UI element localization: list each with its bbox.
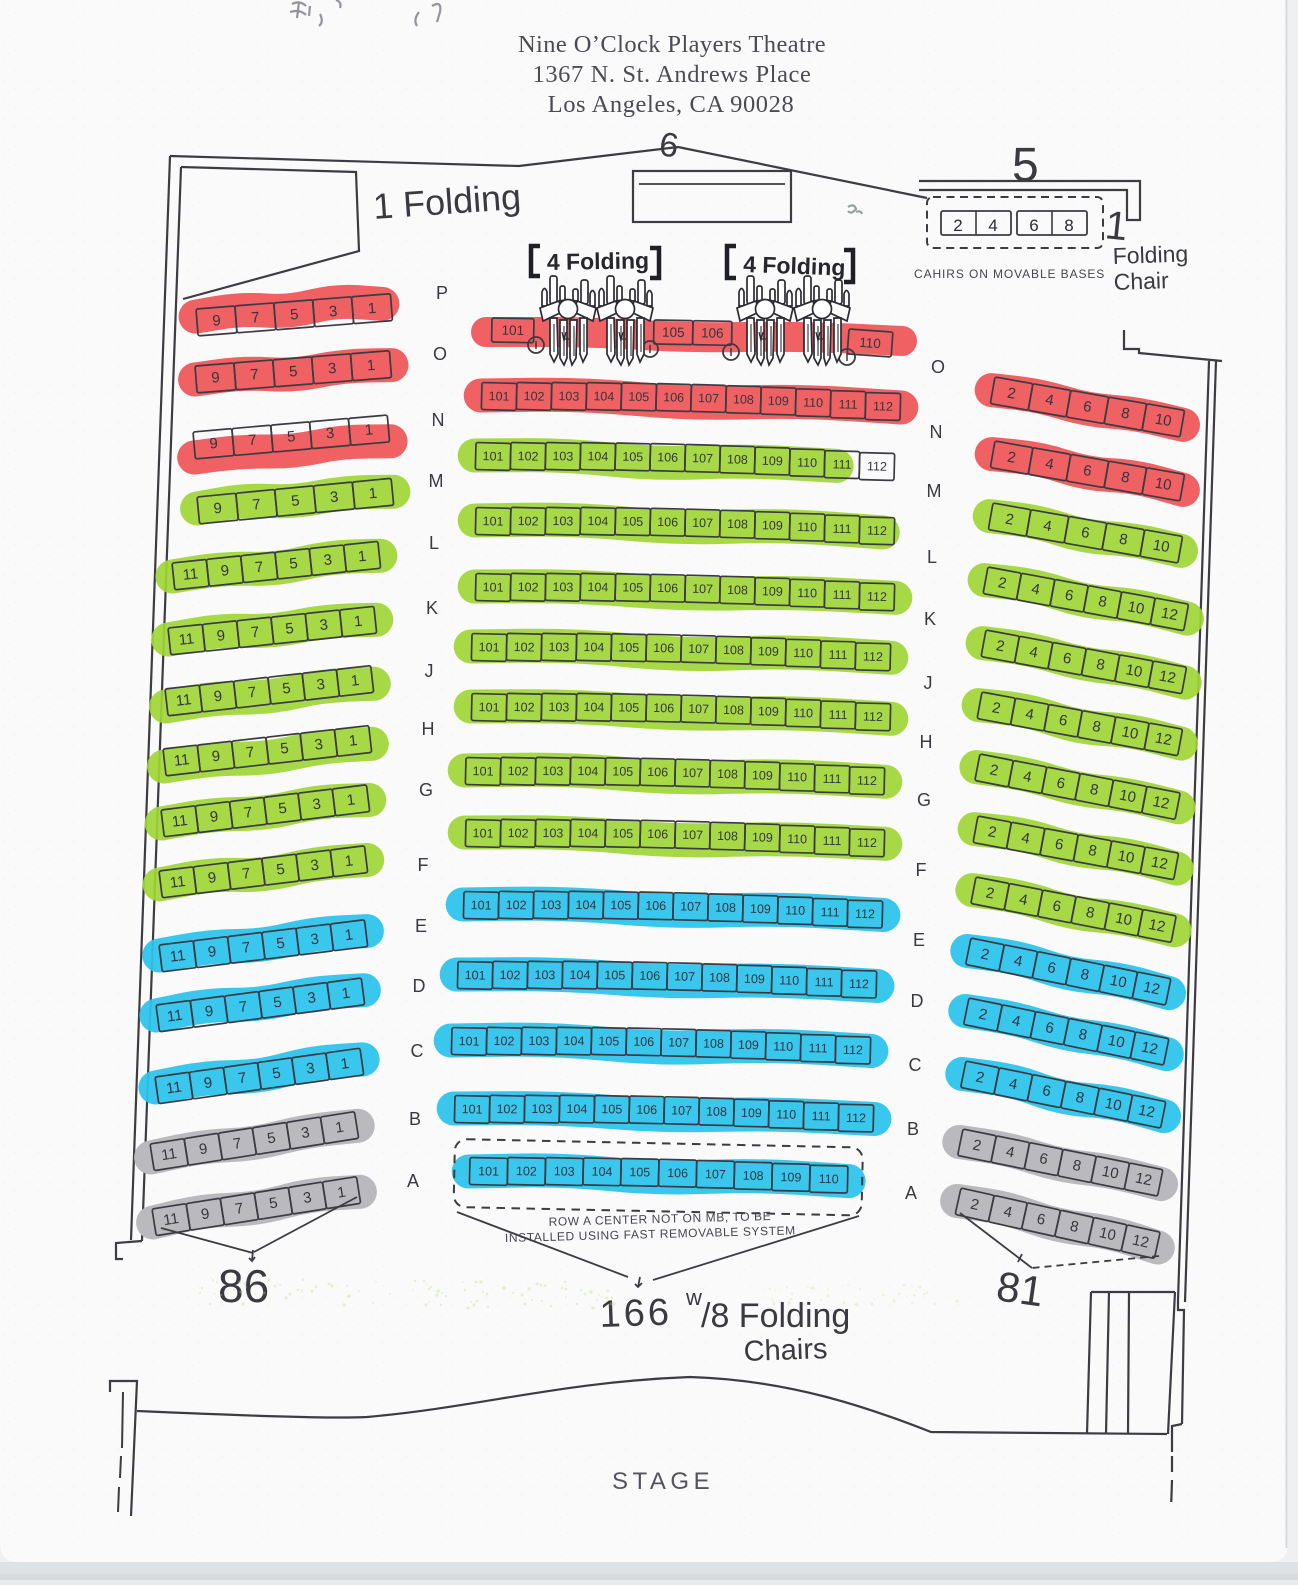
svg-text:12: 12	[1140, 1039, 1160, 1059]
svg-text:104: 104	[587, 514, 608, 529]
svg-text:8: 8	[1064, 216, 1073, 235]
svg-text:104: 104	[563, 1034, 584, 1048]
svg-text:103: 103	[542, 826, 563, 841]
svg-text:J: J	[924, 673, 933, 693]
svg-text:Nine O’Clock Players Theatre: Nine O’Clock Players Theatre	[518, 31, 826, 58]
svg-text:J: J	[425, 661, 434, 681]
svg-text:110: 110	[797, 520, 817, 534]
svg-text:107: 107	[671, 1103, 692, 1117]
svg-text:A: A	[905, 1183, 917, 1203]
svg-text:112: 112	[863, 650, 883, 664]
svg-text:103: 103	[552, 514, 573, 529]
svg-text:3: 3	[319, 616, 329, 634]
svg-text:9: 9	[220, 562, 230, 580]
svg-text:B: B	[409, 1109, 421, 1129]
svg-text:101: 101	[488, 389, 509, 404]
svg-text:11: 11	[182, 565, 199, 584]
svg-text:103: 103	[540, 898, 561, 912]
svg-text:C: C	[411, 1041, 424, 1061]
svg-text:1: 1	[357, 548, 367, 566]
svg-text:105: 105	[622, 580, 643, 595]
svg-text:111: 111	[811, 1109, 830, 1123]
svg-text:106: 106	[653, 641, 674, 656]
svg-text:P: P	[436, 283, 448, 303]
svg-text:109: 109	[750, 902, 771, 916]
svg-text:110: 110	[787, 770, 807, 784]
svg-text:12: 12	[1151, 793, 1171, 813]
svg-text:H: H	[422, 719, 435, 739]
svg-text:3: 3	[329, 488, 339, 506]
svg-text:N: N	[930, 422, 943, 442]
svg-text:10: 10	[1108, 972, 1128, 992]
svg-text:10: 10	[1126, 598, 1146, 618]
svg-text:105: 105	[598, 1034, 619, 1048]
svg-text:5: 5	[289, 555, 299, 573]
svg-text:11: 11	[166, 1007, 184, 1026]
svg-text:H: H	[920, 732, 933, 752]
svg-text:108: 108	[733, 392, 754, 407]
svg-text:E: E	[913, 930, 925, 950]
svg-text:108: 108	[717, 767, 738, 782]
svg-text:D: D	[413, 976, 426, 996]
svg-text:106: 106	[657, 515, 678, 530]
svg-text:106: 106	[647, 765, 668, 780]
svg-text:107: 107	[698, 391, 719, 406]
svg-text:9: 9	[209, 435, 219, 453]
svg-text:O: O	[931, 357, 945, 377]
svg-text:F: F	[418, 855, 429, 875]
svg-text:104: 104	[577, 764, 598, 779]
svg-text:4: 4	[988, 216, 997, 235]
svg-text:109: 109	[741, 1106, 762, 1120]
svg-text:G: G	[917, 790, 931, 810]
svg-text:101: 101	[462, 1102, 483, 1116]
svg-text:7: 7	[254, 559, 264, 577]
svg-text:101: 101	[478, 700, 499, 715]
svg-text:L: L	[927, 547, 937, 567]
svg-text:G: G	[419, 780, 433, 800]
svg-text:111: 111	[808, 1041, 827, 1055]
svg-text:11: 11	[171, 812, 189, 831]
svg-text:112: 112	[867, 524, 887, 538]
svg-text:102: 102	[506, 898, 527, 912]
svg-text:109: 109	[762, 518, 783, 533]
svg-text:104: 104	[587, 449, 608, 464]
svg-text:112: 112	[873, 399, 893, 414]
svg-text:10: 10	[1106, 1032, 1126, 1052]
svg-text:107: 107	[668, 1035, 689, 1049]
svg-text:104: 104	[591, 1165, 612, 1179]
svg-text:11: 11	[178, 630, 195, 649]
svg-text:108: 108	[727, 452, 748, 467]
svg-text:110: 110	[797, 456, 817, 471]
svg-text:104: 104	[569, 968, 590, 982]
svg-text:w: w	[685, 1285, 702, 1310]
svg-text:112: 112	[867, 590, 887, 604]
svg-text:Los Angeles, CA 90028: Los Angeles, CA 90028	[548, 91, 795, 118]
svg-text:109: 109	[780, 1170, 801, 1184]
svg-text:104: 104	[575, 898, 596, 912]
svg-text:12: 12	[1147, 916, 1167, 936]
svg-text:K: K	[924, 609, 936, 629]
svg-text:112: 112	[857, 836, 877, 850]
svg-text:111: 111	[832, 457, 851, 471]
svg-text:7: 7	[248, 432, 258, 450]
svg-text:108: 108	[715, 901, 736, 915]
svg-text:103: 103	[552, 580, 573, 595]
svg-text:11: 11	[169, 947, 187, 966]
svg-text:104: 104	[566, 1102, 587, 1116]
svg-text:111: 111	[832, 588, 851, 602]
svg-text:106: 106	[645, 899, 666, 913]
svg-text:10: 10	[1114, 910, 1134, 930]
svg-text:108: 108	[727, 583, 748, 598]
svg-text:112: 112	[843, 1043, 863, 1057]
svg-text:5: 5	[286, 428, 296, 446]
svg-text:11: 11	[165, 1078, 183, 1097]
svg-text:102: 102	[513, 640, 534, 655]
svg-text:108: 108	[717, 829, 738, 844]
svg-text:111: 111	[820, 905, 839, 919]
svg-text:166: 166	[599, 1291, 673, 1336]
svg-text:111: 111	[832, 522, 851, 536]
svg-text:D: D	[911, 991, 924, 1011]
svg-text:103: 103	[558, 389, 579, 404]
svg-text:112: 112	[846, 1111, 866, 1125]
svg-text:109: 109	[762, 584, 783, 599]
svg-text:12: 12	[1158, 667, 1178, 687]
svg-text:103: 103	[554, 1164, 575, 1178]
svg-text:1: 1	[367, 300, 377, 318]
svg-text:109: 109	[768, 394, 789, 409]
svg-text:111: 111	[814, 975, 833, 989]
svg-text:112: 112	[849, 977, 869, 991]
svg-text:103: 103	[548, 640, 569, 655]
svg-text:108: 108	[723, 643, 744, 658]
svg-text:101: 101	[501, 323, 524, 338]
svg-text:12: 12	[1150, 853, 1170, 873]
svg-text:112: 112	[855, 907, 875, 921]
svg-text:101: 101	[465, 968, 486, 982]
svg-text:108: 108	[723, 703, 744, 718]
svg-text:108: 108	[703, 1037, 724, 1051]
svg-text:102: 102	[513, 700, 534, 715]
svg-text:O: O	[433, 344, 447, 364]
svg-text:5: 5	[290, 492, 300, 510]
svg-text:103: 103	[534, 968, 555, 982]
svg-text:9: 9	[213, 500, 223, 518]
svg-text:110: 110	[859, 335, 882, 351]
svg-text:A: A	[407, 1171, 419, 1191]
svg-text:105: 105	[622, 514, 643, 529]
svg-text:10: 10	[1120, 723, 1140, 743]
svg-text:107: 107	[688, 642, 709, 657]
svg-text:106: 106	[647, 827, 668, 842]
svg-text:102: 102	[496, 1102, 517, 1116]
svg-text:L: L	[429, 533, 439, 553]
svg-text:105: 105	[622, 450, 643, 465]
svg-text:CAHIRS ON MOVABLE BASES: CAHIRS ON MOVABLE BASES	[914, 267, 1105, 281]
svg-text:9: 9	[216, 627, 226, 645]
svg-text:11: 11	[173, 751, 190, 770]
svg-text:12: 12	[1142, 979, 1162, 999]
svg-text:106: 106	[701, 325, 724, 340]
svg-text:3: 3	[327, 360, 337, 378]
svg-text:11: 11	[169, 873, 187, 892]
svg-text:105: 105	[604, 968, 625, 982]
svg-text:107: 107	[682, 766, 703, 781]
svg-text:11: 11	[160, 1145, 178, 1164]
svg-text:104: 104	[593, 389, 614, 404]
svg-text:103: 103	[542, 764, 563, 779]
svg-text:E: E	[415, 916, 427, 936]
svg-text:111: 111	[828, 648, 847, 662]
svg-text:F: F	[916, 860, 927, 880]
svg-text:5: 5	[285, 620, 295, 638]
svg-text:111: 111	[828, 708, 847, 722]
svg-text:108: 108	[706, 1105, 727, 1119]
svg-text:103: 103	[552, 449, 573, 464]
svg-text:107: 107	[682, 828, 703, 843]
svg-text:112: 112	[863, 710, 883, 724]
svg-text:N: N	[432, 410, 445, 430]
svg-text:1: 1	[353, 613, 363, 631]
svg-text:101: 101	[482, 449, 503, 464]
svg-text:6: 6	[1029, 216, 1038, 235]
svg-text:1: 1	[368, 485, 378, 503]
svg-text:101: 101	[478, 1164, 499, 1178]
svg-text:107: 107	[688, 702, 709, 717]
svg-text:104: 104	[577, 826, 598, 841]
svg-text:103: 103	[528, 1034, 549, 1048]
svg-text:81: 81	[994, 1262, 1047, 1315]
svg-text:102: 102	[493, 1034, 514, 1048]
svg-text:10: 10	[1154, 475, 1173, 495]
svg-text:101: 101	[472, 826, 493, 841]
svg-text:3: 3	[325, 425, 335, 443]
svg-text:107: 107	[692, 516, 713, 531]
svg-text:1367 N. St. Andrews Place: 1367 N. St. Andrews Place	[532, 61, 811, 88]
svg-text:11: 11	[162, 1210, 180, 1229]
svg-text:105: 105	[628, 390, 649, 405]
svg-text:7: 7	[250, 366, 260, 384]
svg-text:3: 3	[323, 551, 333, 569]
svg-text:M: M	[927, 481, 942, 501]
svg-text:C: C	[909, 1055, 922, 1075]
svg-text:10: 10	[1100, 1163, 1120, 1183]
svg-text:110: 110	[793, 646, 813, 660]
svg-text:4 Folding: 4 Folding	[547, 247, 650, 275]
svg-text:102: 102	[517, 449, 538, 464]
svg-text:10: 10	[1154, 411, 1173, 431]
svg-text:111: 111	[838, 397, 857, 411]
svg-text:101: 101	[459, 1034, 480, 1048]
svg-text:103: 103	[548, 700, 569, 715]
svg-text:109: 109	[758, 704, 779, 719]
svg-text:101: 101	[482, 580, 503, 595]
svg-text:106: 106	[633, 1035, 654, 1049]
svg-text:107: 107	[692, 451, 713, 466]
svg-text:101: 101	[471, 898, 492, 912]
svg-text:5: 5	[1012, 139, 1039, 192]
svg-text:12: 12	[1160, 604, 1180, 624]
svg-text:7: 7	[250, 624, 260, 642]
svg-text:108: 108	[727, 517, 748, 532]
svg-text:101: 101	[482, 514, 503, 529]
svg-text:K: K	[426, 598, 438, 618]
svg-text:9: 9	[211, 369, 221, 387]
svg-text:107: 107	[680, 899, 701, 913]
svg-text:102: 102	[517, 514, 538, 529]
svg-text:4 Folding: 4 Folding	[743, 251, 846, 281]
svg-text:7: 7	[251, 309, 261, 327]
svg-text:105: 105	[610, 898, 631, 912]
svg-text:11: 11	[175, 691, 192, 710]
svg-text:12: 12	[1137, 1102, 1157, 1122]
svg-text:107: 107	[692, 582, 713, 597]
svg-text:106: 106	[636, 1103, 657, 1117]
svg-text:104: 104	[583, 700, 604, 715]
svg-text:M: M	[429, 471, 444, 491]
svg-text:108: 108	[743, 1169, 764, 1183]
svg-text:110: 110	[793, 706, 813, 720]
svg-text:10: 10	[1124, 661, 1144, 681]
svg-text:106: 106	[657, 450, 678, 465]
svg-text:107: 107	[674, 969, 695, 983]
svg-text:110: 110	[819, 1172, 839, 1186]
svg-text:112: 112	[867, 459, 887, 474]
svg-text:106: 106	[639, 969, 660, 983]
svg-text:102: 102	[507, 826, 528, 841]
svg-text:106: 106	[657, 581, 678, 596]
svg-text:109: 109	[744, 972, 765, 986]
svg-text:102: 102	[507, 764, 528, 779]
svg-text:B: B	[907, 1119, 919, 1139]
svg-text:102: 102	[516, 1164, 537, 1178]
svg-text:109: 109	[738, 1038, 759, 1052]
svg-text:111: 111	[822, 834, 841, 848]
svg-text:105: 105	[662, 325, 685, 340]
svg-text:10: 10	[1116, 847, 1136, 867]
svg-text:10: 10	[1152, 537, 1171, 557]
svg-text:105: 105	[612, 764, 633, 779]
svg-text:9: 9	[212, 312, 222, 330]
svg-text:10: 10	[1118, 787, 1138, 807]
svg-text:STAGE: STAGE	[612, 1468, 714, 1495]
svg-text:2: 2	[953, 216, 962, 235]
svg-text:104: 104	[583, 640, 604, 655]
svg-text:106: 106	[663, 390, 684, 405]
svg-text:5: 5	[289, 306, 299, 324]
svg-text:/8 Folding: /8 Folding	[701, 1297, 850, 1335]
svg-text:106: 106	[667, 1166, 688, 1180]
svg-text:109: 109	[752, 768, 773, 783]
svg-text:101: 101	[478, 640, 499, 655]
svg-text:110: 110	[803, 396, 823, 411]
svg-text:109: 109	[762, 454, 783, 469]
svg-text:105: 105	[629, 1165, 650, 1179]
svg-text:105: 105	[618, 640, 639, 655]
svg-text:12: 12	[1154, 729, 1174, 749]
svg-text:7: 7	[252, 496, 262, 514]
svg-text:3: 3	[328, 303, 338, 321]
svg-text:10: 10	[1103, 1095, 1123, 1115]
svg-text:Chair: Chair	[1113, 267, 1169, 295]
svg-text:102: 102	[499, 968, 520, 982]
svg-text:5: 5	[288, 363, 298, 381]
svg-text:101: 101	[472, 764, 493, 779]
svg-text:109: 109	[758, 644, 779, 659]
svg-text:110: 110	[773, 1039, 793, 1053]
svg-text:102: 102	[523, 389, 544, 404]
svg-text:105: 105	[612, 826, 633, 841]
svg-text:Chairs: Chairs	[743, 1333, 828, 1368]
svg-text:107: 107	[705, 1167, 726, 1181]
svg-text:104: 104	[587, 580, 608, 595]
svg-text:102: 102	[517, 580, 538, 595]
svg-text:1: 1	[364, 421, 374, 439]
svg-text:108: 108	[709, 971, 730, 985]
svg-text:106: 106	[653, 701, 674, 716]
svg-text:109: 109	[752, 830, 773, 845]
svg-text:103: 103	[531, 1102, 552, 1116]
svg-text:111: 111	[822, 772, 841, 786]
svg-text:105: 105	[601, 1102, 622, 1116]
svg-text:1: 1	[366, 357, 376, 375]
svg-text:Folding: Folding	[1112, 240, 1188, 269]
svg-text:110: 110	[797, 586, 817, 600]
svg-text:105: 105	[618, 700, 639, 715]
svg-text:110: 110	[785, 903, 805, 917]
svg-text:112: 112	[857, 774, 877, 788]
svg-text:110: 110	[776, 1107, 796, 1121]
svg-text:110: 110	[787, 832, 807, 846]
svg-text:110: 110	[779, 973, 799, 987]
svg-text:12: 12	[1134, 1170, 1154, 1190]
